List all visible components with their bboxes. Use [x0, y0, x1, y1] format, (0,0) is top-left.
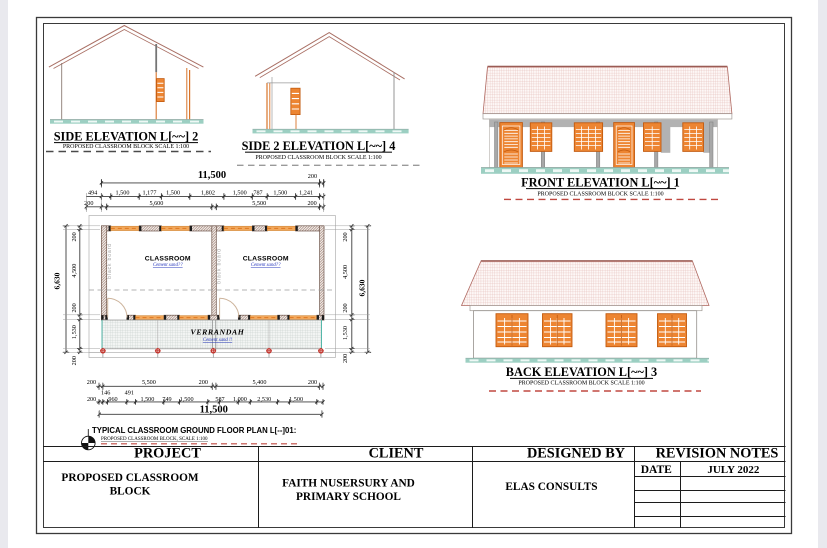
svg-text:PROJECT: PROJECT [134, 446, 201, 462]
svg-text:1,530: 1,530 [71, 325, 78, 339]
svg-text:200: 200 [199, 379, 208, 386]
svg-text:200: 200 [308, 379, 317, 386]
svg-text:200: 200 [342, 232, 349, 241]
svg-text:DESIGNED BY: DESIGNED BY [527, 446, 626, 462]
svg-text:CLASSROOM: CLASSROOM [243, 256, 289, 263]
svg-text:200: 200 [87, 396, 96, 403]
svg-text:787: 787 [253, 190, 262, 197]
svg-text:1,500: 1,500 [166, 190, 180, 197]
svg-text:FAITH NUSERSURY AND: FAITH NUSERSURY AND [282, 478, 415, 490]
svg-text:200: 200 [342, 354, 349, 363]
svg-text:PROPOSED CLASSROOM BLOCK SCALE: PROPOSED CLASSROOM BLOCK SCALE 1:100 [518, 381, 644, 387]
svg-text:REVISION NOTES: REVISION NOTES [656, 446, 779, 462]
svg-text:black board: black board [107, 243, 113, 279]
svg-text:Cement sand??: Cement sand?? [251, 263, 281, 268]
svg-text:6,630: 6,630 [358, 279, 367, 296]
svg-text:PROPOSED CLASSROOM BLOCK SCALE: PROPOSED CLASSROOM BLOCK SCALE 1:100 [63, 144, 189, 150]
svg-text:PRIMARY SCHOOL: PRIMARY SCHOOL [296, 491, 401, 503]
svg-text:11,500: 11,500 [200, 404, 228, 415]
svg-text:1,500: 1,500 [273, 190, 287, 197]
svg-text:200: 200 [84, 200, 93, 207]
svg-text:PROPOSED CLASSROOM BLOCK SCALE: PROPOSED CLASSROOM BLOCK SCALE 1:100 [255, 155, 381, 161]
svg-text:black board: black board [216, 248, 222, 284]
svg-text:Cement sand !!: Cement sand !! [203, 338, 233, 343]
svg-text:200: 200 [307, 200, 316, 207]
svg-text:PROPOSED CLASSROOM: PROPOSED CLASSROOM [61, 472, 198, 484]
svg-text:5,500: 5,500 [142, 379, 156, 386]
svg-text:1,177: 1,177 [143, 190, 157, 197]
svg-text:ELAS CONSULTS: ELAS CONSULTS [505, 481, 597, 493]
svg-text:1,500: 1,500 [116, 190, 130, 197]
svg-text:1,241: 1,241 [299, 190, 313, 197]
svg-text:Cement sand??: Cement sand?? [153, 263, 183, 268]
svg-text:SIDE ELEVATION L[~~] 2: SIDE ELEVATION L[~~] 2 [54, 130, 199, 144]
svg-text:5,500: 5,500 [252, 200, 266, 207]
svg-text:TYPICAL CLASSROOM GROUND FLOOR: TYPICAL CLASSROOM GROUND FLOOR PLAN L[--… [92, 426, 296, 435]
svg-text:FRONT ELEVATION L[~~] 1: FRONT ELEVATION L[~~] 1 [521, 176, 680, 190]
svg-text:CLASSROOM: CLASSROOM [145, 256, 191, 263]
svg-text:PROPOSED CLASSROOM BLOCK SCALE: PROPOSED CLASSROOM BLOCK SCALE 1:100 [537, 192, 663, 198]
svg-text:BACK ELEVATION L[~~] 3: BACK ELEVATION L[~~] 3 [506, 365, 657, 379]
svg-text:BLOCK: BLOCK [110, 486, 151, 498]
svg-text:200: 200 [71, 303, 78, 312]
svg-text:5,400: 5,400 [253, 379, 267, 386]
svg-text:CLIENT: CLIENT [369, 446, 424, 462]
svg-text:VERRANDAH: VERRANDAH [191, 328, 245, 337]
svg-text:491: 491 [125, 389, 134, 396]
svg-text:494: 494 [88, 190, 97, 197]
svg-text:DATE: DATE [641, 464, 672, 476]
svg-text:11,500: 11,500 [198, 170, 226, 181]
svg-text:5,600: 5,600 [149, 200, 163, 207]
svg-text:JULY 2022: JULY 2022 [707, 464, 760, 476]
svg-text:200: 200 [71, 232, 78, 241]
svg-text:200: 200 [87, 379, 96, 386]
svg-text:1,500: 1,500 [233, 190, 247, 197]
svg-text:1,802: 1,802 [201, 190, 215, 197]
svg-text:200: 200 [342, 303, 349, 312]
svg-text:200: 200 [308, 173, 317, 180]
svg-text:200: 200 [71, 356, 78, 365]
svg-text:4,500: 4,500 [71, 264, 78, 278]
svg-text:SIDE 2 ELEVATION L[~~] 4: SIDE 2 ELEVATION L[~~] 4 [242, 139, 396, 153]
svg-text:1,530: 1,530 [342, 326, 349, 340]
svg-text:6,630: 6,630 [53, 272, 62, 289]
svg-text:4,500: 4,500 [342, 265, 349, 279]
